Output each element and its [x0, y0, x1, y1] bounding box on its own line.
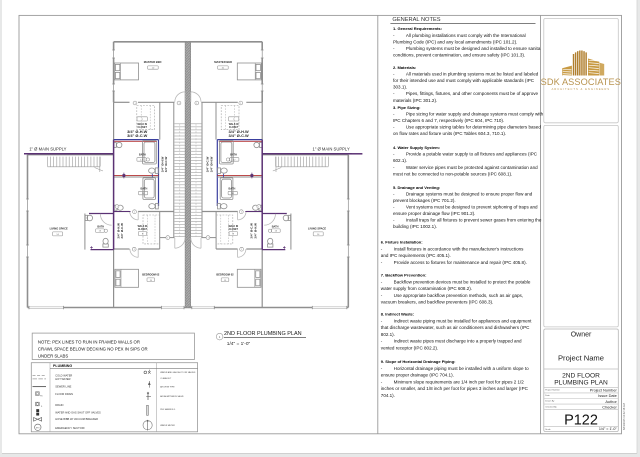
svg-text:BATH: BATH: [229, 187, 236, 190]
svg-text:ARCHITECTS & ENGINEERS: ARCHITECTS & ENGINEERS: [551, 87, 610, 91]
svg-text:3/4" Ø-C.W: 3/4" Ø-C.W: [127, 133, 148, 138]
svg-text:PEX MANIFOLD: PEX MANIFOLD: [160, 408, 175, 411]
svg-text:CLOSET: CLOSET: [229, 229, 239, 231]
svg-text:- Minimum slope requir: - Minimum slope requirements are 1/4 inc…: [381, 379, 525, 384]
svg-text:CLEANOUT: CLEANOUT: [160, 377, 172, 380]
svg-text:- Install traps for al: - Install traps for all fixtures to prev…: [393, 218, 542, 223]
svg-text:WALK IN: WALK IN: [228, 225, 238, 228]
svg-text:- Indirect waste pipin: - Indirect waste piping must be installe…: [381, 318, 532, 323]
svg-text:4. Water Supply System:: 4. Water Supply System:: [393, 145, 440, 150]
svg-text:1. General Requirements:: 1. General Requirements:: [393, 26, 442, 31]
svg-text:3/4" Ø-C.W: 3/4" Ø-C.W: [228, 133, 249, 138]
svg-text:PLUMBING: PLUMBING: [53, 364, 72, 368]
svg-text:- Indirect waste pipes: - Indirect waste pipes must discharge in…: [381, 339, 522, 344]
svg-text:704.1).: 704.1).: [381, 393, 395, 398]
svg-text:3/4" Ø-C.W: 3/4" Ø-C.W: [206, 156, 210, 172]
svg-text:GENERAL NOTES: GENERAL NOTES: [392, 17, 440, 23]
svg-text:prevent blockages (IPC 701.2).: prevent blockages (IPC 701.2).: [393, 198, 456, 203]
svg-text:AIR ADMITTANCE VALVE: AIR ADMITTANCE VALVE: [160, 395, 184, 398]
svg-text:Author: Author: [605, 399, 617, 404]
svg-text:Project Number: Project Number: [590, 388, 618, 393]
svg-text:on flow rates and fixture unit: on flow rates and fixture units (IPC Tab…: [393, 131, 506, 136]
svg-text:3/4" Ø-H.W: 3/4" Ø-H.W: [253, 223, 257, 239]
svg-text:materials (IPC 301.2).: materials (IPC 301.2).: [393, 98, 437, 103]
svg-text:3/4" Ø-C.W: 3/4" Ø-C.W: [164, 156, 168, 172]
svg-text:WATER METER: WATER METER: [160, 424, 175, 427]
svg-text:Checker: Checker: [602, 404, 617, 409]
svg-text:- Use appropriate sizi: - Use appropriate sizing tables for dete…: [393, 124, 541, 129]
svg-text:- Use appropriate back: - Use appropriate backflow prevention me…: [381, 293, 523, 298]
svg-text:Scale: Scale: [545, 429, 551, 431]
svg-text:PLUMBING PLAN: PLUMBING PLAN: [554, 380, 608, 387]
svg-text:vacuum breakers, and backflow: vacuum breakers, and backflow preventers…: [381, 300, 493, 305]
svg-text:1/4" = 1'-0": 1/4" = 1'-0": [227, 341, 251, 347]
svg-text:2ND FLOOR: 2ND FLOOR: [562, 372, 600, 379]
svg-text:WATER AND GAS SHUT OFF VALVES: WATER AND GAS SHUT OFF VALVES: [55, 411, 101, 415]
svg-text:vented receptor (IPC 802.2).: vented receptor (IPC 802.2).: [381, 346, 438, 351]
svg-text:Plumbing Code (IPC) and any lo: Plumbing Code (IPC) and any local amendm…: [393, 39, 517, 44]
svg-text:IPC Chapters 6 and 7, respecti: IPC Chapters 6 and 7, respectively (IPC …: [393, 118, 504, 123]
svg-text:P122: P122: [564, 412, 598, 428]
svg-text:- Backflow prevention: - Backflow prevention devices must be in…: [381, 279, 531, 284]
svg-text:- Vent systems must be: - Vent systems must be designed to preve…: [393, 205, 538, 210]
svg-text:602.1).: 602.1).: [393, 158, 407, 163]
svg-text:- Horizontal drainage: - Horizontal drainage piping must be ins…: [381, 366, 529, 371]
svg-text:SEWER LINE: SEWER LINE: [55, 385, 71, 389]
svg-text:BATH: BATH: [139, 154, 146, 157]
svg-text:conditions, prevent contaminat: conditions, prevent contamination, and e…: [393, 52, 525, 57]
svg-text:- Pipes, fittings, fix: - Pipes, fittings, fixtures, and other c…: [393, 91, 539, 96]
svg-text:- Provide access to fi: - Provide access to fixtures for mainten…: [381, 260, 527, 265]
svg-text:8. Indirect Waste:: 8. Indirect Waste:: [381, 312, 414, 317]
svg-text:BATH: BATH: [97, 225, 104, 228]
svg-text:MASTER BED: MASTER BED: [144, 60, 162, 64]
svg-text:9. Slope of Horizontal Drainag: 9. Slope of Horizontal Drainage Piping:: [381, 359, 456, 364]
svg-text:WALK IN: WALK IN: [229, 123, 239, 126]
svg-text:CLOSET: CLOSET: [138, 229, 148, 231]
svg-text:1" Ø MAIN SUPPLY: 1" Ø MAIN SUPPLY: [313, 146, 350, 151]
svg-text:LIVING SPACE: LIVING SPACE: [50, 226, 68, 230]
svg-text:BEDROOM 02: BEDROOM 02: [216, 272, 234, 276]
svg-text:802.1).: 802.1).: [381, 332, 395, 337]
svg-text:1/4" = 1'-0": 1/4" = 1'-0": [599, 427, 618, 431]
svg-text:- Install fixtures in: - Install fixtures in accordance with th…: [381, 246, 524, 251]
svg-text:- All plumbing install: - All plumbing installations must comply…: [393, 33, 526, 38]
svg-text:FLOOR DRAIN: FLOOR DRAIN: [55, 392, 73, 396]
svg-text:inches or smaller, and 1/8 inc: inches or smaller, and 1/8 inch per foot…: [381, 386, 529, 391]
svg-text:3/4" Ø-H.W: 3/4" Ø-H.W: [209, 156, 213, 172]
svg-text:MASTER BED: MASTER BED: [214, 60, 232, 64]
svg-text:must not be connected to non-p: must not be connected to non-potable sou…: [393, 171, 512, 176]
svg-text:BATH: BATH: [141, 187, 148, 190]
svg-text:BATH: BATH: [230, 154, 237, 157]
svg-text:ensure proper drainage flow (I: ensure proper drainage flow (IPC 901.2).: [393, 211, 475, 216]
svg-text:water supply from contaminatio: water supply from contamination (IPC 608…: [381, 286, 472, 291]
svg-text:- All materials used i: - All materials used in plumbing systems…: [393, 72, 539, 77]
svg-text:WALK IN: WALK IN: [138, 225, 148, 228]
svg-text:1" Ø MAIN SUPPLY: 1" Ø MAIN SUPPLY: [29, 146, 66, 151]
svg-text:BATH: BATH: [272, 225, 279, 228]
svg-text:Issue Date: Issue Date: [598, 393, 617, 398]
svg-text:- Water service pipes: - Water service pipes must be protected …: [393, 165, 538, 170]
svg-text:NOTE: PEX LINES TO RUN IN FRAM: NOTE: PEX LINES TO RUN IN FRAMED WALLS O…: [38, 339, 140, 344]
svg-text:WALK IN: WALK IN: [137, 123, 147, 126]
svg-text:and IPC requirements (IPC 405.: and IPC requirements (IPC 405.1).: [381, 253, 451, 258]
svg-text:LIVING SPACE: LIVING SPACE: [308, 226, 326, 230]
svg-text:for their intended use and mus: for their intended use and must comply w…: [393, 78, 535, 83]
svg-text:Drawn By: Drawn By: [545, 400, 555, 403]
svg-text:2ND FLOOR PLUMBING PLAN: 2ND FLOOR PLUMBING PLAN: [224, 331, 302, 337]
svg-text:SDK ASSOCIATES: SDK ASSOCIATES: [541, 77, 621, 87]
svg-text:- Provide a potable wa: - Provide a potable water supply to all …: [393, 152, 538, 157]
svg-text:Project Name: Project Name: [558, 353, 604, 362]
svg-text:- Pipe sizing for wate: - Pipe sizing for water supply and drain…: [393, 111, 544, 116]
svg-text:building (IPC 1002.1).: building (IPC 1002.1).: [393, 224, 437, 229]
svg-text:Owner: Owner: [571, 332, 592, 339]
svg-text:Checked By: Checked By: [545, 406, 557, 408]
svg-text:6. Fixture Installation:: 6. Fixture Installation:: [381, 240, 423, 245]
svg-text:303.1).: 303.1).: [393, 85, 407, 90]
svg-text:3/4" Ø-C.W: 3/4" Ø-C.W: [120, 223, 124, 239]
svg-text:Project Number: Project Number: [545, 389, 560, 392]
svg-text:- Drainage systems mus: - Drainage systems must be designed to e…: [393, 191, 533, 196]
svg-text:AIR VENT PIPE: AIR VENT PIPE: [160, 385, 175, 388]
svg-text:CRAWL SPACE BELOW DECKING NO P: CRAWL SPACE BELOW DECKING NO PEX IN SIPS…: [38, 347, 148, 352]
svg-text:EMERGENCY SHUTOFF: EMERGENCY SHUTOFF: [55, 426, 85, 430]
svg-text:ensure proper drainage (IPC 70: ensure proper drainage (IPC 704.1).: [381, 373, 454, 378]
svg-text:3/4" Ø-C.W: 3/4" Ø-C.W: [250, 223, 254, 239]
svg-text:UNDER SLABS: UNDER SLABS: [38, 354, 68, 359]
svg-text:- Plumbing systems mus: - Plumbing systems must be designed and …: [393, 46, 541, 51]
svg-text:HOT WATER: HOT WATER: [55, 377, 70, 381]
svg-text:7. Backflow Prevention:: 7. Backflow Prevention:: [381, 273, 427, 278]
svg-text:5. Drainage and Venting:: 5. Drainage and Venting:: [393, 185, 440, 190]
svg-text:BEDROOM 02: BEDROOM 02: [142, 272, 160, 276]
svg-text:6/19/2025 10:42:18 AM: 6/19/2025 10:42:18 AM: [622, 403, 626, 430]
svg-text:3. Pipe Sizing:: 3. Pipe Sizing:: [393, 105, 420, 110]
svg-text:DRAIN: DRAIN: [55, 403, 63, 407]
svg-text:HOSE BIBB W/ VACUUM BREAKER: HOSE BIBB W/ VACUUM BREAKER: [55, 417, 98, 421]
svg-text:2. Materials:: 2. Materials:: [393, 65, 416, 70]
svg-text:WATER AND GAS SHUT OFF VALVES: WATER AND GAS SHUT OFF VALVES: [160, 371, 196, 374]
svg-text:that discharge wastewater, suc: that discharge wastewater, such as air c…: [381, 325, 530, 330]
